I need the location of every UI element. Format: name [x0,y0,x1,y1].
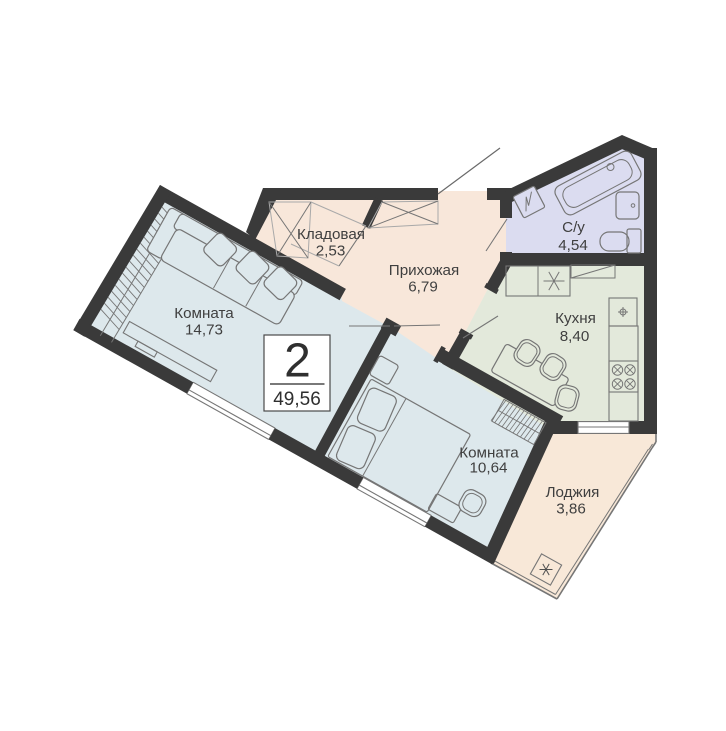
svg-text:С/у: С/у [562,219,585,236]
svg-text:Комната: Комната [174,305,234,322]
svg-text:6,79: 6,79 [408,279,438,296]
svg-text:2,53: 2,53 [316,243,346,260]
svg-text:4,54: 4,54 [558,237,588,254]
svg-text:14,73: 14,73 [185,321,223,338]
svg-text:Прихожая: Прихожая [389,262,459,279]
svg-text:Лоджия: Лоджия [546,484,600,501]
svg-text:Кладовая: Кладовая [297,226,365,243]
svg-text:3,86: 3,86 [556,501,586,518]
svg-text:Кухня: Кухня [555,310,596,327]
svg-text:49,56: 49,56 [273,389,321,410]
svg-text:8,40: 8,40 [560,328,590,345]
svg-text:2: 2 [284,335,311,388]
svg-text:10,64: 10,64 [469,460,507,477]
